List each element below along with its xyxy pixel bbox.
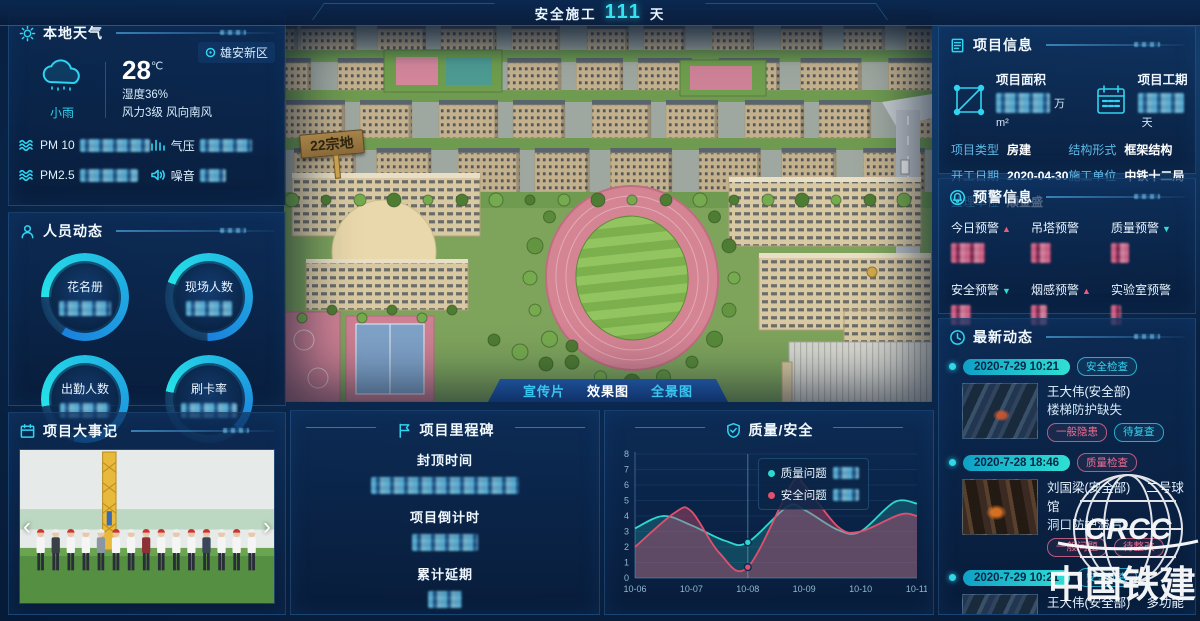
- metric-label: 气压: [171, 137, 195, 154]
- carousel-next-button[interactable]: ›: [263, 515, 271, 539]
- waves-icon: [19, 169, 35, 181]
- updates-title: 最新动态: [973, 327, 1033, 347]
- location-badge[interactable]: 雄安新区: [198, 42, 275, 63]
- gauge-value-censored: [59, 301, 111, 316]
- milestone-label: 封顶时间: [417, 450, 473, 469]
- update-issue: 楼梯防护缺失: [1047, 401, 1164, 419]
- person-icon: [19, 223, 36, 240]
- field-label: 结构形式: [1068, 143, 1116, 157]
- warning-item: 质量预警▼: [1111, 219, 1191, 263]
- trend-arrow-icon: ▼: [1162, 224, 1171, 234]
- update-person: 王大伟(安全部): [1047, 596, 1130, 610]
- update-issue: 洞口防护滞后: [1047, 516, 1187, 534]
- aerial-render: [284, 10, 932, 402]
- chart-tooltip: 质量问题安全问题: [758, 458, 869, 510]
- svg-text:8: 8: [624, 449, 629, 459]
- info-field: 项目类型房建: [951, 141, 1068, 158]
- gauge-label: 出勤人数: [61, 380, 109, 397]
- legend-label: 质量问题: [781, 465, 827, 481]
- group-photo: [20, 450, 274, 603]
- gauge-value-censored: [186, 301, 232, 316]
- gauge-label: 现场人数: [185, 278, 233, 295]
- quality-safety-chart: 01234567810-0610-0710-0810-0910-1010-11 …: [609, 446, 929, 603]
- personnel-gauge: 花名册: [41, 253, 129, 341]
- update-entry[interactable]: 2020-7-29 10:21 安全检查 王大伟(安全部) 楼梯防护缺失 一般隐…: [949, 357, 1187, 442]
- warning-value-censored: [1111, 243, 1129, 263]
- weather-metric: PM2.5: [19, 167, 150, 184]
- trend-arrow-icon: ▲: [1082, 286, 1091, 296]
- milestone-value-censored: [371, 477, 519, 494]
- document-icon: [949, 37, 966, 54]
- milestone-value-censored: [428, 591, 462, 608]
- quality-safety-panel: 质量/安全 01234567810-0610-0710-0810-0910-10…: [604, 410, 934, 615]
- update-photo[interactable]: [962, 594, 1038, 615]
- update-type-badge: 质量检查: [1077, 453, 1137, 472]
- svg-text:0: 0: [624, 573, 629, 583]
- timeline-dot: [949, 459, 956, 466]
- updates-panel: 最新动态 2020-7-29 10:21 安全检查 王大伟(安全部) 楼梯防护缺…: [938, 318, 1196, 615]
- timeline-dot: [949, 363, 956, 370]
- warning-item: 吊塔预警: [1031, 219, 1111, 263]
- events-panel: 项目大事记 ‹ ›: [8, 412, 286, 615]
- metric-value-censored: [200, 139, 252, 152]
- update-photo[interactable]: [962, 383, 1038, 439]
- stat-unit: 天: [1142, 117, 1153, 129]
- carousel-prev-button[interactable]: ‹: [23, 515, 31, 539]
- weather-title: 本地天气: [43, 23, 103, 43]
- scene-tab-效果图[interactable]: 效果图: [587, 381, 629, 400]
- svg-text:10-07: 10-07: [680, 584, 703, 594]
- events-title: 项目大事记: [43, 421, 118, 441]
- legend-dot: [768, 470, 775, 477]
- weather-metric: 噪音: [150, 167, 275, 184]
- info-stat: 项目工期 天: [1093, 69, 1191, 131]
- clock-icon: [949, 329, 966, 346]
- svg-text:10-09: 10-09: [793, 584, 816, 594]
- svg-text:10-08: 10-08: [736, 584, 759, 594]
- mini-field-1: [384, 50, 502, 92]
- update-tag: 一般隐患: [1047, 423, 1107, 442]
- info-stat: 项目面积 万m²: [951, 69, 1069, 131]
- gauge-icon: [150, 139, 166, 151]
- area-icon: [951, 82, 987, 118]
- update-datetime: 2020-7-29 10:21: [963, 359, 1070, 375]
- noise-icon: [150, 169, 166, 181]
- legend-value-censored: [833, 489, 859, 501]
- personnel-gauge: 现场人数: [165, 253, 253, 341]
- gauge-label: 刷卡率: [191, 380, 227, 397]
- info-field: 结构形式框架结构: [1068, 141, 1195, 158]
- milestone-panel: 项目里程碑 封顶时间 项目倒计时 累计延期: [290, 410, 600, 615]
- events-photo-carousel: ‹ ›: [19, 449, 275, 604]
- location-pin-icon: [205, 47, 216, 58]
- update-tag: 一般问题: [1047, 538, 1107, 557]
- chart-title: 质量/安全: [749, 420, 814, 440]
- warning-value-censored: [951, 243, 985, 263]
- metric-value-censored: [80, 169, 138, 182]
- milestone-item: 累计延期: [417, 564, 473, 608]
- metric-label: PM2.5: [40, 168, 75, 182]
- field-value: 框架结构: [1124, 143, 1172, 157]
- svg-text:10-11: 10-11: [906, 584, 927, 594]
- weather-panel: 本地天气 雄安新区 小雨 28℃ 湿度3: [8, 14, 286, 206]
- warning-title: 预警信息: [973, 187, 1033, 207]
- safety-days-unit: 天: [650, 3, 666, 23]
- warning-item: 今日预警▲: [951, 219, 1031, 263]
- svg-text:2: 2: [624, 542, 629, 552]
- warning-label: 质量预警: [1111, 221, 1159, 235]
- svg-text:10-10: 10-10: [849, 584, 872, 594]
- update-type-badge: 安全检查: [1077, 568, 1137, 587]
- trend-arrow-icon: ▼: [1002, 286, 1011, 296]
- milestone-label: 累计延期: [417, 564, 473, 583]
- personnel-panel: 人员动态 花名册 现场人数 出勤人数 刷卡率: [8, 212, 286, 406]
- field-value: 房建: [1007, 143, 1031, 157]
- personnel-title: 人员动态: [43, 221, 103, 241]
- dashboard-root: 安全施工 111 天: [0, 0, 1200, 621]
- svg-text:7: 7: [624, 465, 629, 475]
- stat-label: 项目工期: [1138, 69, 1191, 88]
- metric-label: 噪音: [171, 167, 195, 184]
- warning-label: 烟感预警: [1031, 283, 1079, 297]
- metric-label: PM 10: [40, 138, 75, 152]
- update-tags: 一般隐患待复查: [1047, 423, 1164, 442]
- update-type-badge: 安全检查: [1077, 357, 1137, 376]
- update-entry[interactable]: 2020-7-28 18:46 质量检查 刘国梁(安全部)二号球馆 洞口防护滞后…: [949, 453, 1187, 557]
- legend-dot: [768, 492, 775, 499]
- field-label: 项目类型: [951, 143, 999, 157]
- weather-metric: PM 10: [19, 137, 150, 154]
- timeline-dot: [949, 574, 956, 581]
- svg-text:5: 5: [624, 496, 629, 506]
- safety-days-count: 111: [605, 1, 642, 24]
- safety-days-header: 安全施工 111 天: [0, 0, 1200, 26]
- svg-text:4: 4: [624, 511, 629, 521]
- shield-check-icon: [725, 422, 742, 439]
- project-info-panel: 项目信息 项目面积 万m² 项目工期 天 项目类型房建 结构形式框架结构 开工日…: [938, 26, 1196, 174]
- wind: 风力3级 风向南风: [122, 105, 212, 123]
- svg-text:1: 1: [624, 558, 629, 568]
- project-info-title: 项目信息: [973, 35, 1033, 55]
- milestone-item: 项目倒计时: [410, 507, 480, 551]
- milestone-label: 项目倒计时: [410, 507, 480, 526]
- update-photo[interactable]: [962, 479, 1038, 535]
- svg-text:3: 3: [624, 527, 629, 537]
- metric-value-censored: [200, 169, 226, 182]
- scene-tab-全景图[interactable]: 全景图: [651, 381, 693, 400]
- stat-label: 项目面积: [996, 69, 1069, 88]
- milestone-title: 项目里程碑: [420, 420, 495, 440]
- rain-cloud-icon: [36, 58, 88, 96]
- calendar-icon: [1093, 82, 1129, 118]
- legend-value-censored: [833, 467, 859, 479]
- update-datetime: 2020-7-29 10:21: [963, 570, 1070, 586]
- weather-condition: 小雨: [19, 104, 105, 121]
- waves-icon: [19, 139, 35, 151]
- svg-text:10-06: 10-06: [623, 584, 646, 594]
- warning-label: 安全预警: [951, 283, 999, 297]
- trend-arrow-icon: ▲: [1002, 224, 1011, 234]
- update-tag: 待整改: [1114, 538, 1164, 557]
- calendar-photo-icon: [19, 423, 36, 440]
- update-entry[interactable]: 2020-7-29 10:21 安全检查 王大伟(安全部)多功能体育馆 楼梯防护…: [949, 568, 1187, 615]
- gauge-label: 花名册: [67, 278, 103, 295]
- update-datetime: 2020-7-28 18:46: [963, 455, 1070, 471]
- warning-panel: 预警信息 今日预警▲ 吊塔预警 质量预警▼ 安全预警▼ 烟感预警▲ 实验室预警: [938, 178, 1196, 314]
- mini-field-2: [680, 60, 766, 96]
- scene-tab-宣传片[interactable]: 宣传片: [523, 381, 565, 400]
- update-person: 刘国梁(安全部): [1047, 481, 1130, 495]
- update-person: 王大伟(安全部): [1047, 385, 1130, 399]
- update-tags: 一般问题待整改: [1047, 538, 1187, 557]
- safety-days-label: 安全施工: [535, 3, 597, 23]
- warning-label: 吊塔预警: [1031, 221, 1079, 235]
- scene-view-tabs: 宣传片效果图全景图: [488, 379, 728, 402]
- humidity: 湿度36%: [122, 87, 212, 105]
- warning-label: 今日预警: [951, 221, 999, 235]
- sun-icon: [19, 25, 36, 42]
- warning-value-censored: [1031, 243, 1051, 263]
- metric-value-censored: [80, 139, 150, 152]
- warning-label: 实验室预警: [1111, 283, 1171, 297]
- update-tag: 待复查: [1114, 423, 1164, 442]
- legend-label: 安全问题: [781, 487, 827, 503]
- project-3d-view[interactable]: 22宗地 宣传片效果图全景图: [284, 10, 932, 402]
- weather-metric: 气压: [150, 137, 275, 154]
- svg-text:6: 6: [624, 480, 629, 490]
- flag-icon: [396, 422, 413, 439]
- milestone-value-censored: [412, 534, 478, 551]
- milestone-item: 封顶时间: [371, 450, 519, 494]
- stat-value-censored: [1138, 93, 1184, 113]
- bell-icon: [949, 189, 966, 206]
- stat-value-censored: [996, 93, 1050, 113]
